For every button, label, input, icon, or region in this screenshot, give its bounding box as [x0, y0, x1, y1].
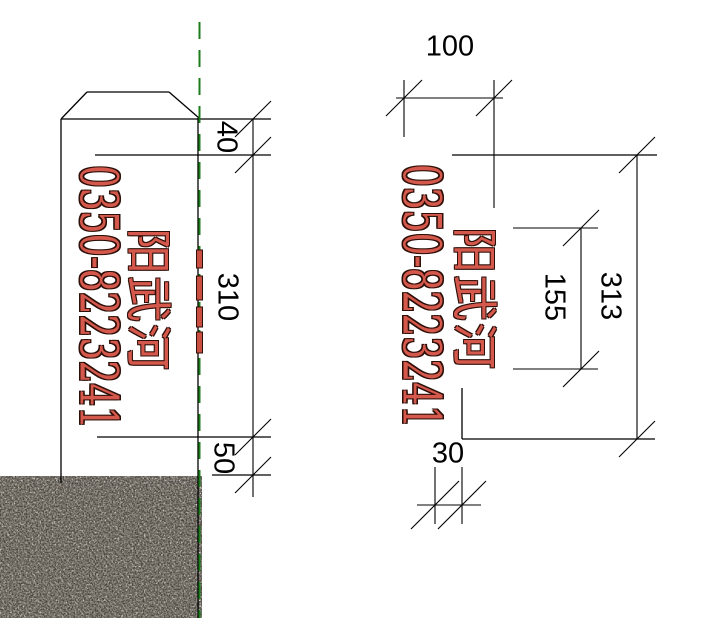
ground-texture	[0, 483, 192, 618]
drawing-canvas: 0350-8223241 阳武河 40 310 50 0350-8223241 …	[0, 0, 718, 618]
